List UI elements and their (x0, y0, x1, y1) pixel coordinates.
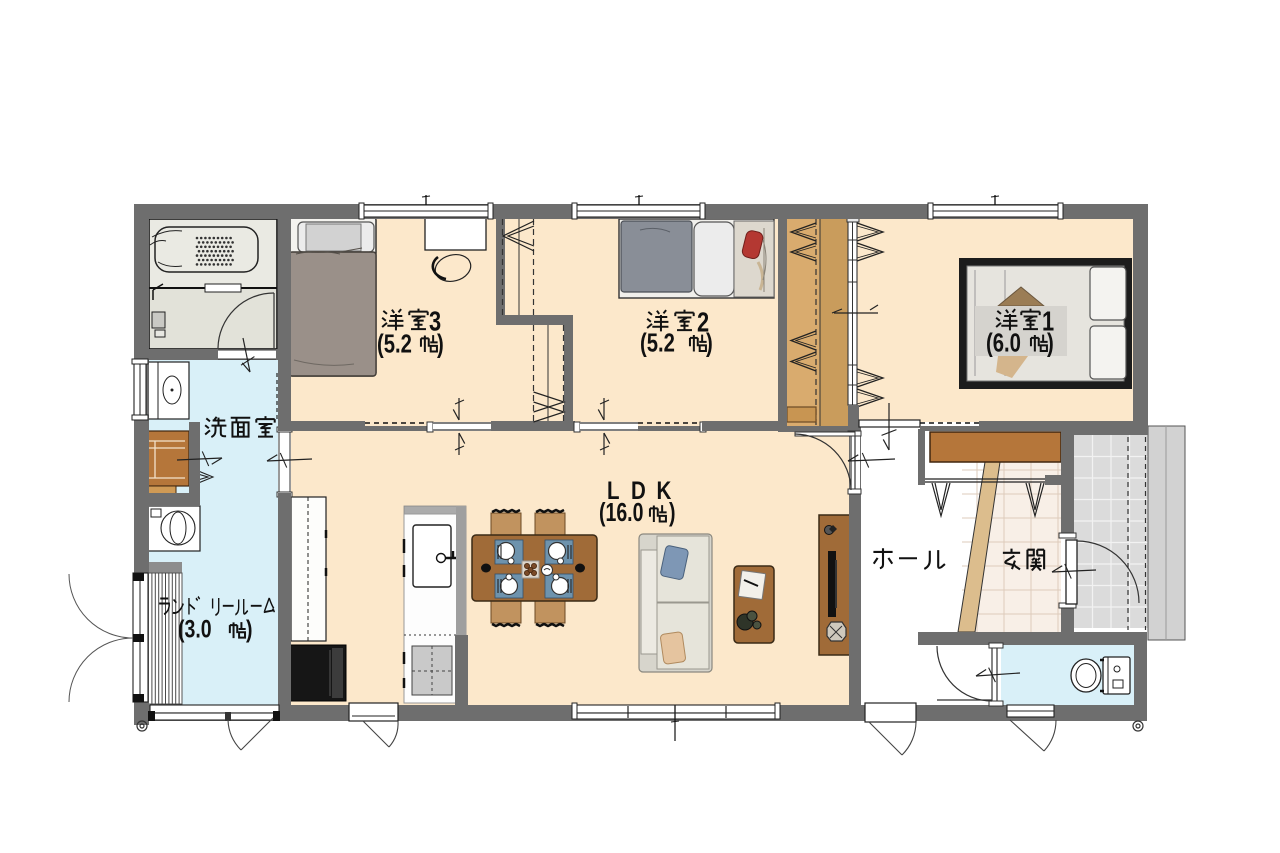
svg-text:(6.0: (6.0 (986, 328, 1021, 357)
svg-text:): ) (437, 329, 444, 358)
svg-text:): ) (706, 328, 713, 357)
svg-text:): ) (669, 497, 675, 526)
svg-text:(5.2: (5.2 (377, 329, 412, 358)
svg-text:): ) (1047, 328, 1054, 357)
svg-text:(16.0: (16.0 (599, 497, 643, 526)
svg-text:(3.0: (3.0 (178, 615, 212, 643)
svg-text:(5.2: (5.2 (640, 328, 675, 357)
svg-text:): ) (246, 615, 252, 643)
